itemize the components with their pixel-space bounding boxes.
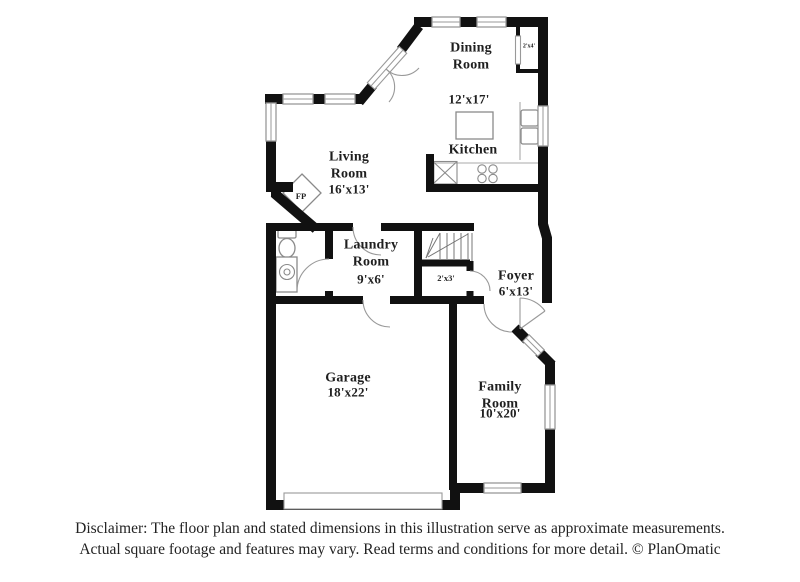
staircase — [426, 233, 472, 261]
fireplace-label: FP — [296, 191, 306, 201]
window — [283, 94, 313, 104]
bathroom-door-arc — [297, 259, 329, 291]
room-label-kitchen: Kitchen — [449, 143, 498, 160]
room-dims-foyer: 6'x13' — [499, 283, 533, 298]
room-label-laundry: Laundry Room — [341, 237, 401, 270]
kitchen-counter-bottom — [434, 163, 543, 184]
window — [266, 103, 276, 141]
windows — [266, 17, 555, 493]
disclaimer: Disclaimer: The floor plan and stated di… — [0, 518, 800, 560]
room-label-living: Living Room — [326, 149, 372, 182]
foyer-closet-door-arc — [470, 271, 490, 291]
garage-entry-door-arc — [363, 300, 390, 327]
floor-plan-page: Dining Room 12'x17' Kitchen Living Room … — [0, 0, 800, 582]
window — [477, 17, 506, 27]
window — [484, 483, 521, 493]
room-dims-family: 10'x20' — [479, 405, 520, 420]
family-room-door-arc — [484, 304, 512, 332]
window — [432, 17, 460, 27]
front-door-arc — [520, 298, 545, 329]
toilet — [278, 230, 296, 258]
utility-box — [433, 162, 457, 185]
window — [538, 106, 548, 146]
room-label-dining: Dining Room — [447, 40, 495, 73]
kitchen-island — [456, 112, 493, 139]
disclaimer-line-2: Actual square footage and features may v… — [0, 539, 800, 560]
closet-slider-door — [516, 36, 521, 64]
room-dims-garage: 18'x22' — [327, 384, 368, 399]
window — [325, 94, 355, 104]
disclaimer-line-1: Disclaimer: The floor plan and stated di… — [0, 518, 800, 539]
room-dims-laundry: 9'x6' — [357, 271, 385, 286]
garage-door — [284, 493, 442, 509]
kitchen-sink — [521, 110, 538, 144]
window — [545, 385, 555, 429]
bathroom-sink — [276, 257, 297, 292]
room-dims-dining: 12'x17' — [448, 91, 489, 106]
french-doors — [367, 47, 419, 102]
floor-plan-drawing — [0, 0, 800, 582]
stove-burners — [478, 165, 497, 183]
entry-sidelite-window — [523, 335, 544, 356]
bathroom-fixtures — [276, 230, 297, 292]
foyer-closet-label: 2'x3' — [437, 273, 454, 283]
dining-closet-label: 2'x4' — [523, 43, 535, 50]
exterior-walls — [265, 17, 555, 510]
room-dims-living: 16'x13' — [328, 181, 369, 196]
